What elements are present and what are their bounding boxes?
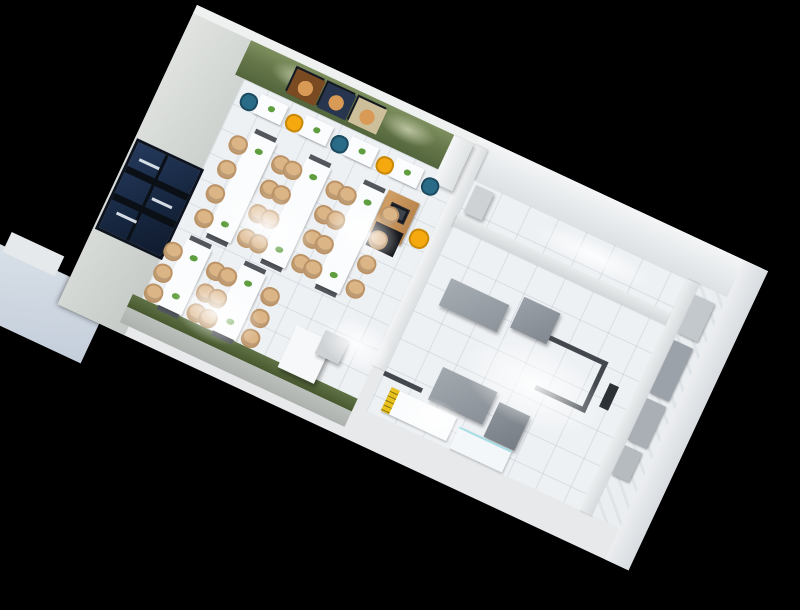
door-glass-reflection — [151, 197, 172, 209]
black-backdrop — [0, 0, 800, 600]
door-glass-reflection — [116, 212, 137, 224]
door-glass-reflection — [139, 158, 160, 170]
page-background: { "scene": { "description": "3D isometri… — [0, 0, 800, 600]
floorplan-render — [58, 5, 768, 570]
